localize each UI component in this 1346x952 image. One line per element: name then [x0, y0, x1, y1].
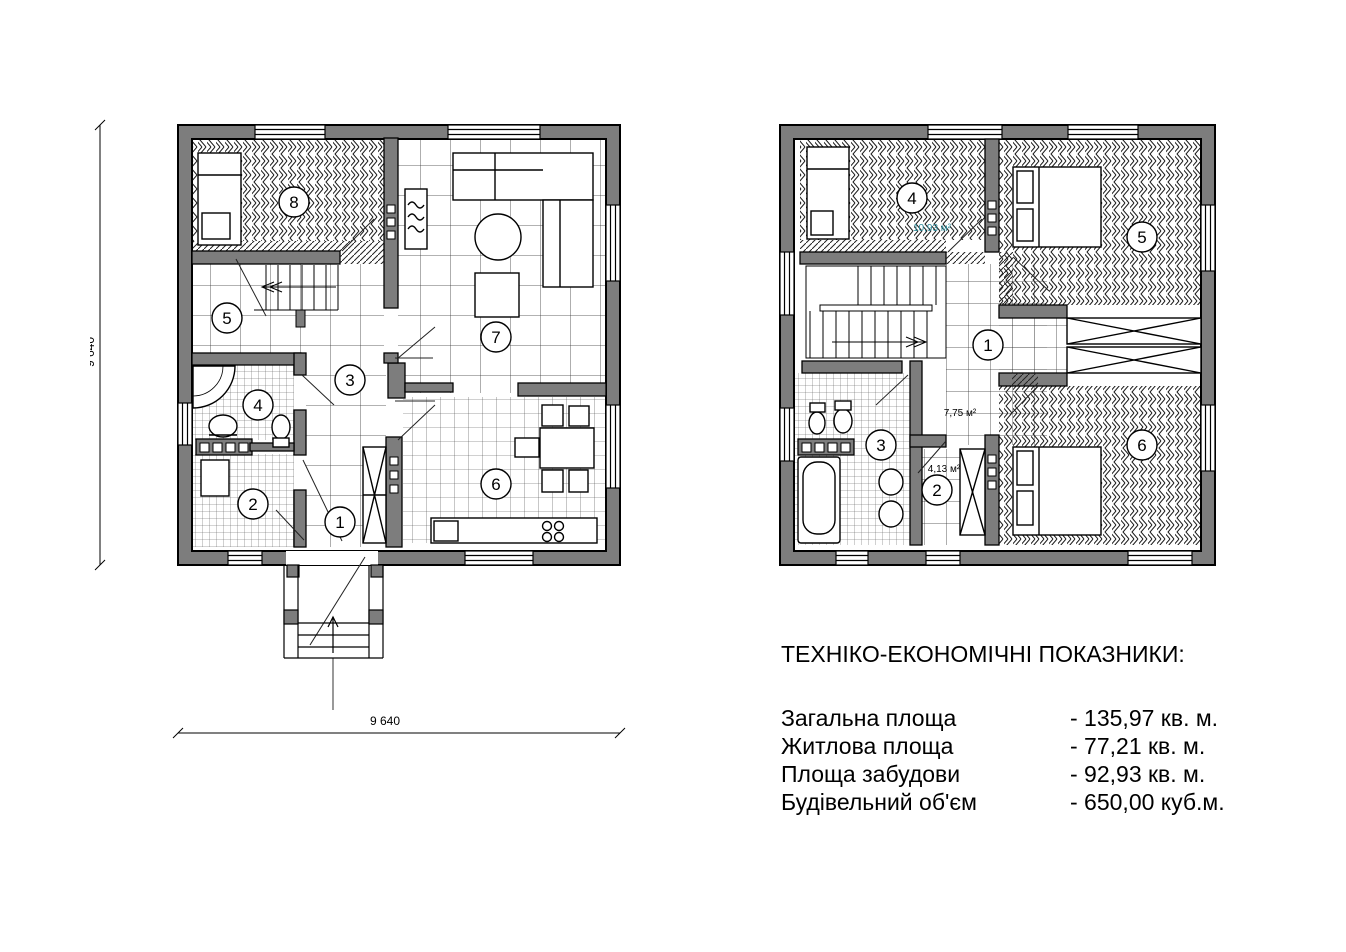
window	[1068, 125, 1138, 139]
cabinet	[201, 460, 229, 496]
stairs	[806, 266, 946, 358]
indicator-row: Площа забудови - 92,93 кв. м.	[781, 760, 1261, 788]
armchair	[475, 273, 519, 317]
room-number-label: 2	[248, 495, 257, 514]
indicator-label: Загальна площа	[781, 704, 1070, 732]
wall	[518, 383, 606, 396]
parquet-border	[800, 240, 946, 252]
area-label-bedroom4: 10,93 м²	[913, 223, 952, 234]
room-number-label: 5	[1137, 228, 1146, 247]
door-threshold	[340, 251, 384, 264]
indicator-value: - 135,97 кв. м.	[1070, 704, 1218, 732]
porch-column	[284, 610, 298, 624]
wall	[985, 435, 999, 545]
room-number-label: 1	[335, 513, 344, 532]
sink	[879, 469, 903, 495]
room-number-label: 2	[932, 481, 941, 500]
wardrobe	[1067, 347, 1201, 373]
door-threshold	[946, 252, 985, 264]
room-number-label: 4	[907, 189, 916, 208]
wall	[405, 383, 453, 392]
kitchen-counter	[431, 518, 597, 543]
kitchen-sink	[434, 521, 458, 541]
stair-newel	[296, 310, 305, 327]
door-threshold	[1012, 373, 1038, 386]
area-label-closet: 4,13 м²	[928, 464, 961, 475]
second-floor-plan: 7,75 м² 4,13 м² 10,93 м² 4 5 1 3 2 6	[770, 105, 1230, 585]
indicator-row: Будівельний об'єм - 650,00 куб.м.	[781, 788, 1261, 816]
toilet	[834, 401, 852, 433]
porch	[284, 565, 383, 710]
round-table	[475, 214, 521, 260]
indicator-label: Будівельний об'єм	[781, 788, 1070, 816]
window	[926, 551, 960, 565]
wall	[192, 251, 340, 264]
dimension-label-bottom: 9 640	[370, 714, 400, 728]
toilet	[809, 403, 825, 434]
window	[255, 125, 325, 139]
window	[836, 551, 868, 565]
room-number-label: 3	[876, 436, 885, 455]
indicator-row: Загальна площа - 135,97 кв. м.	[781, 704, 1261, 732]
sink	[879, 501, 903, 527]
room-number-label: 6	[1137, 436, 1146, 455]
indicator-value: - 77,21 кв. м.	[1070, 732, 1205, 760]
sink	[209, 415, 237, 437]
wardrobe	[1067, 318, 1201, 344]
room-number-label: 1	[983, 336, 992, 355]
indicator-label: Площа забудови	[781, 760, 1070, 788]
wall	[294, 353, 306, 375]
window	[1201, 205, 1215, 271]
room-number-label: 8	[289, 193, 298, 212]
bed	[198, 153, 241, 245]
window	[606, 405, 620, 488]
wall	[802, 361, 902, 373]
indicator-label: Житлова площа	[781, 732, 1070, 760]
door-threshold	[999, 252, 1013, 305]
wall	[999, 305, 1067, 318]
room-number-label: 4	[253, 396, 262, 415]
room-number-label: 3	[345, 371, 354, 390]
wall	[800, 252, 946, 264]
bed	[807, 147, 849, 239]
wall	[192, 353, 301, 365]
indicator-value: - 92,93 кв. м.	[1070, 760, 1205, 788]
window	[178, 403, 192, 445]
first-floor-plan: 9 640 9 640 8 5 4 3 2 1 7 6	[90, 105, 650, 765]
door-swing	[310, 557, 365, 645]
drawing-sheet: { "indicators": { "title": "ТЕХНІКО-ЕКОН…	[0, 0, 1346, 952]
window	[1128, 551, 1192, 565]
window	[928, 125, 1002, 139]
room-number-label: 5	[222, 309, 231, 328]
stair-outline	[806, 266, 946, 358]
stair-railing	[820, 305, 932, 311]
porch-column	[369, 610, 383, 624]
indicators-rows: Загальна площа - 135,97 кв. м. Житлова п…	[781, 704, 1261, 816]
indicators-title: ТЕХНІКО-ЕКОНОМІЧНІ ПОКАЗНИКИ:	[781, 641, 1261, 668]
window	[1201, 405, 1215, 471]
area-label-hall: 7,75 м²	[944, 408, 977, 419]
wall	[910, 435, 946, 447]
wall	[910, 361, 922, 545]
wardrobe	[960, 449, 985, 535]
indicator-value: - 650,00 куб.м.	[1070, 788, 1225, 816]
room-number-label: 7	[491, 328, 500, 347]
window	[465, 551, 533, 565]
room-number-label: 6	[491, 475, 500, 494]
window	[780, 408, 794, 461]
window	[780, 252, 794, 315]
bathtub	[798, 457, 840, 543]
fireplace	[405, 189, 427, 249]
bed	[1013, 447, 1101, 535]
wardrobe	[363, 447, 386, 543]
technical-indicators: ТЕХНІКО-ЕКОНОМІЧНІ ПОКАЗНИКИ: Загальна п…	[781, 641, 1261, 816]
tile-hall-passage	[999, 318, 1067, 373]
dimension-label-left: 9 640	[90, 337, 97, 367]
window	[448, 125, 540, 139]
toilet	[272, 415, 290, 447]
wall	[294, 410, 306, 455]
indicator-row: Житлова площа - 77,21 кв. м.	[781, 732, 1261, 760]
wall	[294, 490, 306, 547]
window	[228, 551, 262, 565]
wall-pier	[388, 363, 405, 398]
bed	[1013, 167, 1101, 247]
window	[606, 205, 620, 281]
